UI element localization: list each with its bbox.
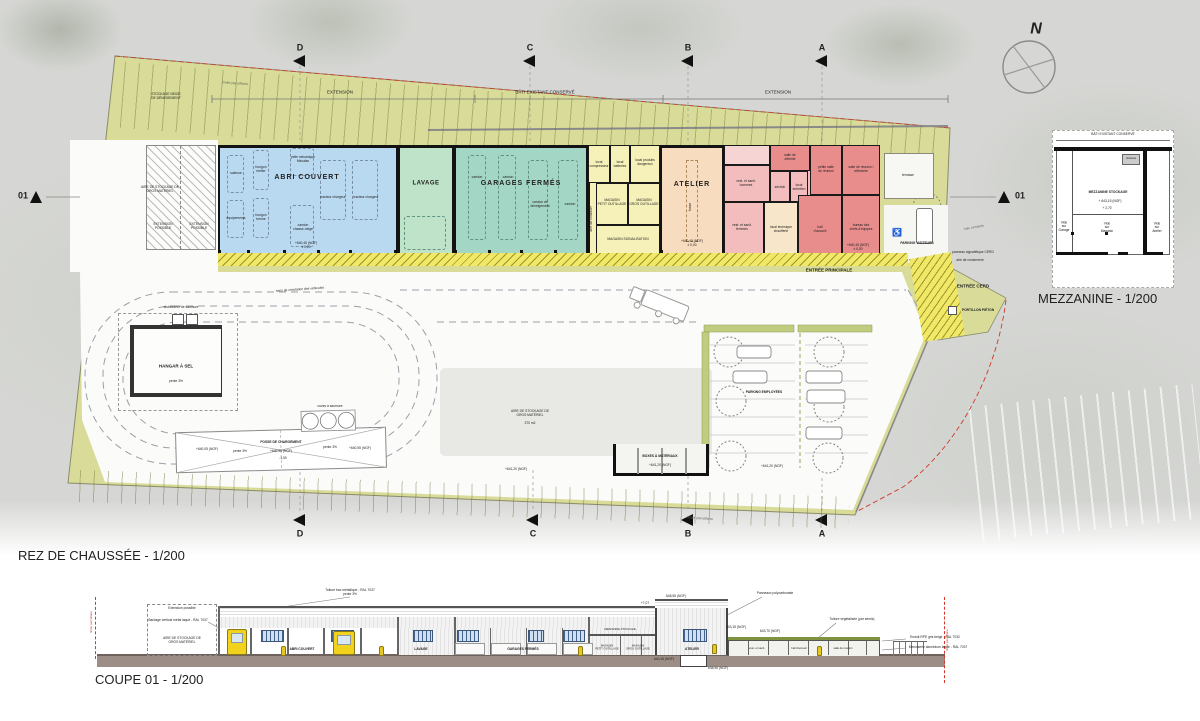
label-hall-coupe: hall d'accueil — [791, 647, 806, 650]
marker-a-top: A — [819, 43, 826, 54]
label-niveau-640-05: +640,05 (NGF) — [196, 448, 218, 452]
label-mezz-hauteur: + 2,70 — [1102, 207, 1111, 211]
label-extension-possible: EXTENSION POSSIBLE — [153, 223, 172, 231]
label-lvl-648: 648,55 (NGF) — [666, 595, 686, 599]
label-lvl-64315: 643,15 (NGF) — [726, 626, 746, 630]
label-niveau-641-20: +641,20 (NGF) — [649, 464, 671, 468]
canopy-strip — [218, 253, 908, 266]
person-figure — [712, 644, 717, 654]
label-extension-left: EXTENSION — [327, 90, 353, 95]
label-salle-detente: salle de détente — [784, 154, 795, 162]
column — [360, 628, 362, 655]
wash-bay — [404, 216, 446, 250]
label-atelier: ATELIER — [674, 181, 710, 189]
label-aire-livraison: aire de livraison — [590, 206, 594, 231]
mezzanine-bottom-wall — [1143, 252, 1163, 255]
label-niveau-640-55: +640,55 (NGF) — [270, 450, 292, 454]
label-bati-existant: BÂTI EXISTANT CONSERVÉ — [515, 90, 574, 95]
box-divider — [637, 448, 639, 474]
post — [660, 250, 663, 253]
label-abri-coupe: ABRI COUVERT — [289, 648, 314, 652]
marker-d-top: D — [297, 43, 304, 54]
label-niveau-640-55: +640,55 (NGF) — [349, 447, 371, 451]
label-extension-possible-coupe: Extension possible — [168, 607, 196, 611]
label-parking-employees: PARKING EMPLOYÉES — [746, 391, 782, 395]
column — [323, 628, 325, 655]
label-extension-right: EXTENSION — [765, 90, 791, 95]
label-camion-chasse: camion chasse-neige — [293, 224, 313, 232]
label-camion: camion — [565, 203, 576, 207]
north-compass-icon — [1003, 41, 1055, 93]
label-bureau-chefs: bureau des chefs d'équipes — [850, 224, 873, 232]
label-vestiaires-hommes: vest. et sanit. hommes — [736, 180, 755, 188]
label-parking-visiteurs: PARKING VISITEURS — [900, 242, 933, 246]
column — [397, 617, 399, 655]
window — [457, 630, 479, 642]
label-lavage-coupe: LAVAGE — [414, 648, 427, 652]
window — [528, 630, 544, 642]
column — [1071, 232, 1074, 235]
truck-bay — [558, 160, 578, 240]
label-niveau-641-20: +641,20 (NGF) — [761, 465, 783, 469]
post — [349, 250, 352, 253]
handicap-icon: ♿ — [892, 228, 902, 238]
post — [586, 250, 589, 253]
label-limite-coupe-left: limite parcellaire — [90, 611, 94, 633]
truck-bay — [498, 155, 516, 240]
label-lvl-64045: 640,45 (NGF) — [654, 658, 674, 662]
section-atelier-roof — [655, 599, 728, 608]
section-title: COUPE 01 - 1/200 — [95, 672, 203, 688]
label-hangar-sel: HANGAR À SEL — [159, 364, 193, 369]
label-entree-principale: ENTRÉE PRINCIPALE — [806, 268, 852, 273]
marker-b-bottom: B — [685, 529, 692, 540]
label-vide-magasin: Vide sur Magasin — [1101, 222, 1113, 234]
label-chaufferie: local technique chaufferie — [770, 226, 792, 234]
label-aire-croisement: aire de croisement — [956, 259, 983, 263]
column — [788, 641, 789, 655]
section-main-roof — [218, 606, 728, 617]
post — [394, 250, 397, 253]
label-aire-370: 370 m2 — [524, 422, 535, 426]
label-garages-coupe: GARAGES FERMÉS — [507, 648, 538, 652]
label-pente: pente 3% — [233, 450, 247, 454]
mezzanine-title: MEZZANINE - 1/200 — [1038, 291, 1157, 307]
label-saleuse: saleuse — [230, 172, 241, 176]
room-sanitaires — [724, 145, 770, 165]
label-local-batteries: local batteries — [614, 161, 627, 169]
label-atelier-coupe: ATELIER — [685, 648, 699, 652]
label-menuiserie: Menuiserie aluminium laqué - RAL 7037 — [909, 646, 968, 650]
portillon-icon — [948, 306, 957, 315]
saumure-box — [186, 314, 198, 325]
vehicle-bay — [320, 160, 346, 220]
marker-cut-left: 01 — [18, 191, 28, 202]
marker-b-top: B — [685, 43, 692, 54]
label-fosse-chargement: FOSSE DE CHARGEMENT — [260, 441, 301, 445]
label-fosse-atelier: fosse — [689, 203, 693, 212]
person-figure — [578, 646, 583, 656]
label-mezz-bati: BÂTI EXISTANT CONSERVÉ — [1091, 133, 1134, 137]
label-niveau-640-45: +640,45 (NGF) ± 0,00 — [681, 240, 703, 248]
label-vide-atelier: Vide sur Atelier — [1152, 222, 1161, 234]
label-limite-coupe-right: limite parcellaire — [946, 629, 950, 651]
post — [488, 250, 491, 253]
marker-d-bottom: D — [297, 529, 304, 540]
label-mezz-stockage: MEZZANINE STOCKAGE — [1089, 191, 1128, 195]
label-salle-reunion: salle de réunion / réfectoire — [848, 166, 873, 174]
column — [866, 641, 867, 655]
post — [247, 250, 250, 253]
label-stockage-neige: STOCKAGE NEIGE DE DÉNEIGEMENT — [151, 93, 181, 101]
truck-front-view — [333, 631, 355, 655]
label-lvl-6437: 643,70 (NGF) — [760, 630, 780, 634]
label-bardage: Bardage vertical métal laqué - RAL 7037 — [148, 619, 207, 623]
box-divider — [661, 448, 663, 474]
column — [768, 641, 769, 655]
window — [413, 630, 433, 642]
label-north: N — [1030, 19, 1042, 38]
post — [283, 250, 286, 253]
post — [317, 250, 320, 253]
label-niveau-641-20: +641,20 (NGF) — [505, 468, 527, 472]
label-terrasse: terrasse — [902, 174, 914, 178]
truck-windshield — [337, 635, 351, 645]
label-polycarbonate: Panneaux polycarbonate — [757, 592, 794, 596]
label-sechoir: séchoir — [775, 186, 786, 190]
label-fourgon-metier: fourgon métier — [255, 166, 266, 174]
label-aire-stockage-coupe: AIRE DE STOCKAGE DE GROS MATÉRIEL — [163, 637, 201, 645]
column — [620, 634, 621, 655]
window — [563, 630, 585, 642]
section-atelier-pit — [680, 655, 707, 667]
truck-front-view — [227, 629, 247, 655]
marker-a-bottom: A — [819, 529, 826, 540]
hangar-a-sel — [130, 325, 222, 397]
marker-c-bottom: C — [530, 529, 537, 540]
label-local-entretien: local entretien — [793, 184, 806, 192]
marker-cut-right: 01 — [1015, 191, 1025, 202]
label-tracteur-chargeur: tracteur chargeur — [320, 196, 345, 200]
truck-windshield — [231, 633, 243, 643]
mezzanine-floor-line — [1072, 214, 1143, 215]
mezzanine-bottom-wall — [1056, 252, 1108, 255]
label-cuves-saumure: cuves à saumure — [317, 405, 342, 409]
label-abri-couvert: ABRI COUVERT — [274, 174, 339, 182]
post — [554, 250, 557, 253]
atelier-pit — [686, 160, 698, 242]
label-enduit: Enduit RPE gris beige - RAL 7032 — [910, 636, 960, 640]
label-niveau-640-45: +640,45 (NGF) ± 0,00 — [295, 242, 317, 250]
mezzanine-right-wall — [1143, 151, 1147, 254]
label-tracteur-chargeur: tracteur chargeur — [353, 196, 378, 200]
marker-c-top: C — [527, 43, 534, 54]
label-vide-garage: Vide sur Garage — [1058, 221, 1069, 233]
garage-door — [455, 643, 485, 655]
label-aire-stockage-ouest: AIRE DE STOCKAGE DE GROS MATÉRIEL — [141, 186, 179, 194]
person-figure — [379, 646, 384, 656]
section-limite-left — [95, 597, 96, 659]
label-panneau-signaletique: panneau signalétique CERD — [952, 251, 994, 255]
section-wall-left — [218, 606, 220, 655]
label-portillon-pieton: PORTILLON PIÉTON — [962, 309, 994, 313]
label-pente: pente 3% — [323, 446, 337, 450]
label-extension-possible: EXTENSION POSSIBLE — [189, 223, 208, 231]
label-hall-accueil: hall d'accueil — [814, 226, 827, 234]
visitor-car — [916, 208, 933, 244]
label-magasin-signalisation: MAGASIN SIGNALISATION — [607, 238, 648, 242]
section-extension-box — [147, 604, 217, 656]
section-mezz-floor — [588, 634, 655, 636]
section-beam-band — [218, 617, 728, 628]
box-divider — [685, 448, 687, 474]
label-lvl-63895: 638,95 (NGF) — [708, 667, 728, 671]
label-mezz-coupe: MEZZANINE STOCKAGE — [604, 628, 635, 631]
window — [261, 630, 284, 642]
label-magasin-petit: MAGASIN PETIT OUTILLAGE — [598, 199, 627, 207]
label-boxes-materiaux: BOXES À MATÉRIAUX — [642, 455, 677, 459]
label-profondeur: -1,50 — [279, 457, 287, 461]
label-salle-reunion-coupe: salle de réunion — [833, 647, 852, 650]
plan-title: REZ DE CHAUSSÉE - 1/200 — [18, 548, 185, 564]
storage-extension-box — [146, 145, 216, 250]
column — [828, 641, 829, 655]
label-mezz-niveau: + 643,15 (NGF) — [1098, 200, 1121, 204]
section-limite-right — [944, 597, 945, 683]
label-equipements: équipements — [227, 217, 246, 221]
mezzanine-left-line — [1072, 151, 1073, 254]
vehicle-bay — [352, 160, 378, 220]
label-magasin-gros: MAGASIN GROS OUTILLAGE — [629, 199, 658, 207]
label-aire-stockage-centre: AIRE DE STOCKAGE DE GROS MATÉRIEL — [511, 410, 549, 418]
label-camion: camion — [503, 176, 514, 180]
truck-bay — [528, 160, 548, 240]
label-chassis: châssis — [1126, 157, 1136, 161]
label-distributeur-saumure: distributeur de saumure — [164, 306, 199, 310]
architectural-drawing-sheet: ♿ — [0, 0, 1200, 721]
label-entree-cerd: ENTRÉE CERD — [957, 284, 989, 289]
label-vestiaires-coupe: vest. et sanit. — [749, 647, 765, 650]
post — [454, 250, 457, 253]
column — [250, 628, 252, 655]
label-local-compresseur: local compresseur — [589, 161, 608, 169]
polycarbonate-window — [683, 629, 707, 642]
label-toiture-vegetalisee: Toiture végétalisée (par semis) — [830, 618, 875, 622]
label-niveau-640-45: +640,45 (NGF) ± 0,00 — [847, 244, 869, 252]
label-lavage: LAVAGE — [412, 180, 439, 187]
label-fourgon-benne: fourgon benne — [255, 214, 266, 222]
label-magasin-gros-coupe: MAGASIN GROS OUTILLAGE — [626, 645, 650, 651]
column — [808, 641, 809, 655]
post — [520, 250, 523, 253]
saumure-box — [172, 314, 184, 325]
label-pente: pente 3% — [169, 380, 183, 384]
label-camion-deneigement: camion de déneigement — [530, 201, 549, 209]
label-petite-salle: petite salle de réunion — [818, 166, 834, 174]
person-figure — [281, 646, 286, 656]
label-local-produits: local produits dangereux — [635, 159, 654, 167]
person-figure — [817, 646, 822, 656]
label-garages-fermes: GARAGES FERMÉS — [481, 180, 562, 188]
post — [218, 250, 221, 253]
storage-area-surface — [440, 368, 712, 456]
room-hall-accueil — [798, 195, 842, 255]
truck-bay — [468, 155, 486, 240]
label-camion: camion — [472, 176, 483, 180]
mezzanine-bottom-wall — [1118, 252, 1128, 255]
extension-divider — [180, 146, 181, 249]
label-magasin-petit-coupe: MAGASIN PETIT OUTILLAGE — [595, 645, 619, 651]
label-vestiaires-femmes: vest. et sanit. femmes — [732, 224, 751, 232]
label-pelle-mecanique: pelle mécanique Mécalac — [291, 156, 315, 164]
mezzanine-dim-line — [1056, 140, 1170, 141]
label-dim-707: +7,07 — [641, 602, 649, 606]
label-toiture-metal: Toiture bac métallique - RAL 7037 pente … — [325, 589, 375, 597]
